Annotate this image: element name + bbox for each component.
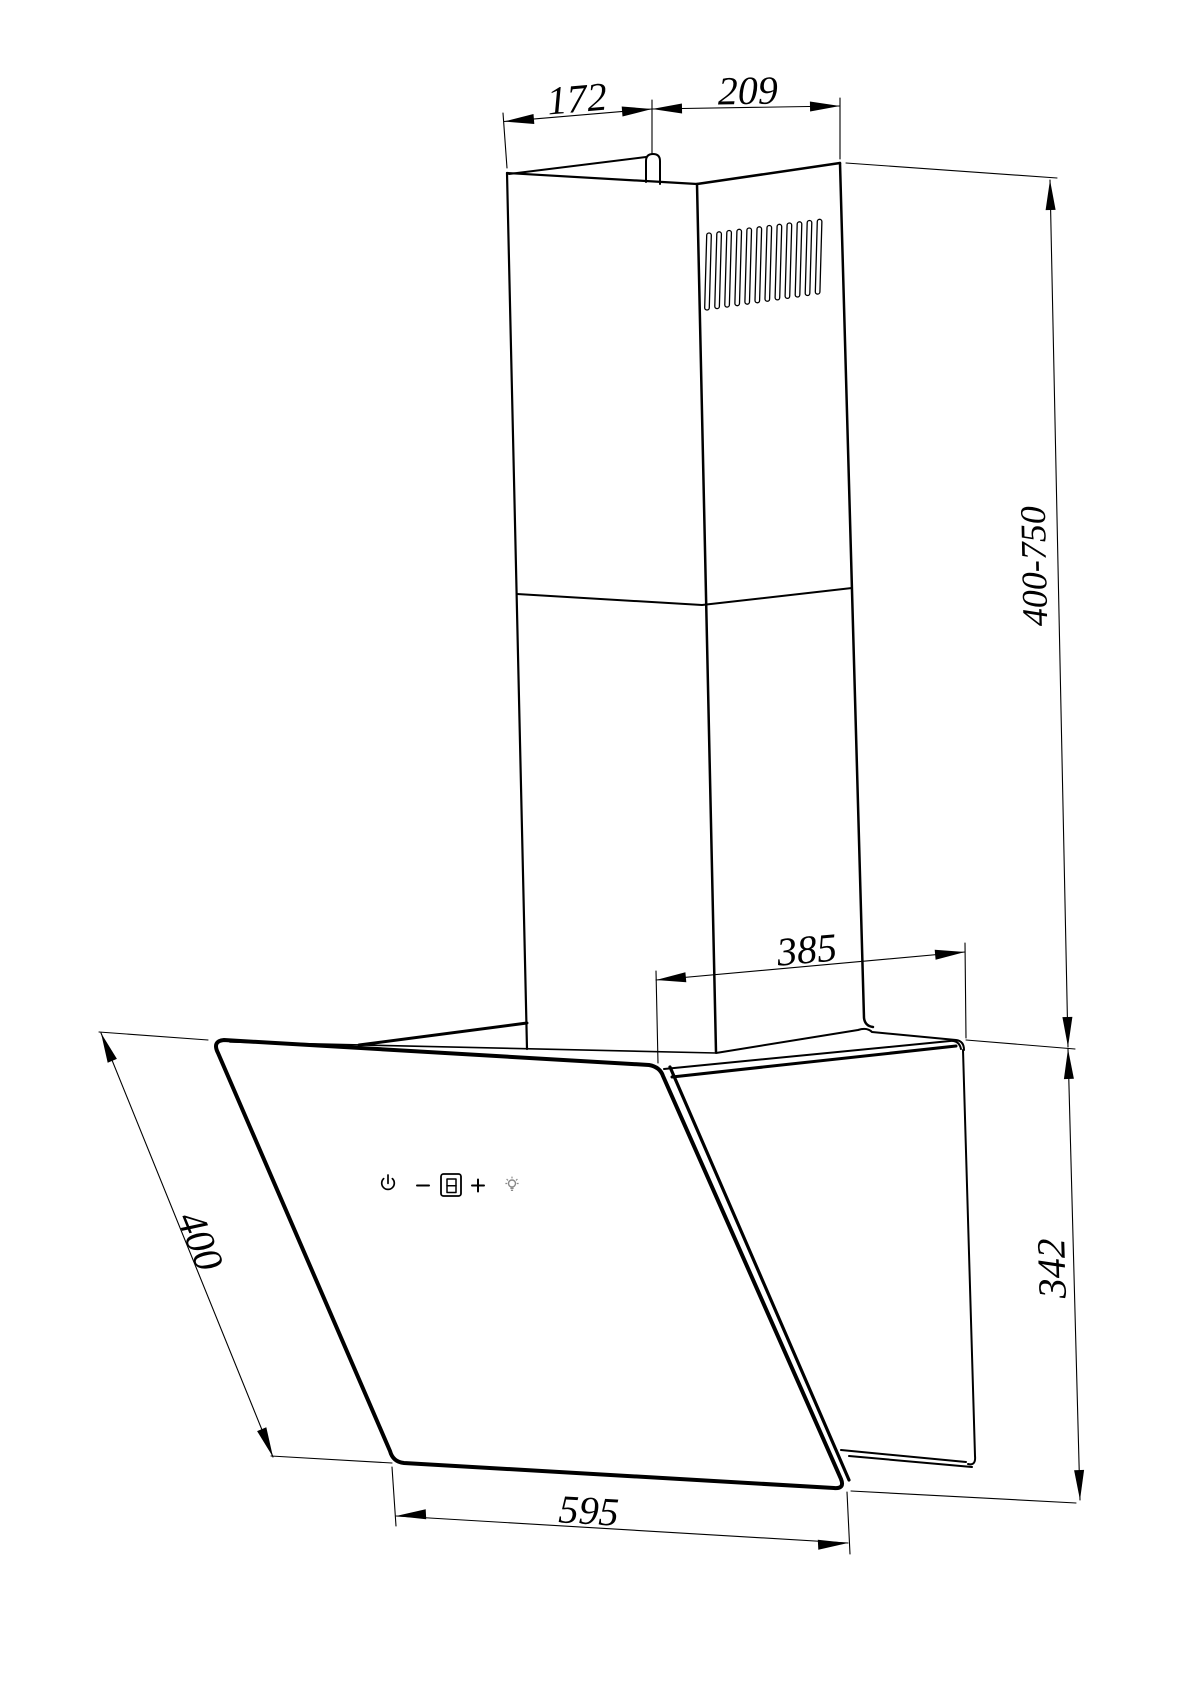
glass-panel <box>216 1040 849 1488</box>
arrowhead <box>1062 1017 1072 1047</box>
ext-line-400-top <box>99 1032 208 1040</box>
light-icon <box>505 1177 518 1191</box>
arrowhead <box>935 950 965 960</box>
dimension-label-rear-height: 342 <box>1028 1238 1075 1300</box>
chimney-side-face <box>697 163 866 1052</box>
hood-top-back-edge-left <box>359 1023 527 1045</box>
ext-line-400-bottom <box>271 1456 392 1463</box>
range-hood-dimension-drawing: 172 209 400-750 385 342 400 595 <box>0 0 1200 1697</box>
arrowhead <box>1046 180 1056 210</box>
arrowhead <box>810 102 840 112</box>
chimney-top-fold-line <box>509 157 646 174</box>
ext-line-595-right <box>847 1492 850 1554</box>
ext-line-595-left <box>392 1467 396 1526</box>
dimension-label-chimney-front-width: 172 <box>545 74 609 124</box>
arrowhead <box>504 114 534 124</box>
arrowhead <box>1074 1470 1084 1500</box>
arrowhead <box>818 1540 848 1550</box>
ext-line-height-top <box>846 163 1057 178</box>
glass-right-edge-outer <box>670 1067 849 1480</box>
ext-line-342-bottom <box>851 1491 1076 1503</box>
dimension-label-body-width: 595 <box>558 1486 621 1534</box>
ext-line-385-right <box>965 943 966 1038</box>
arrowhead <box>257 1427 273 1457</box>
dimension-label-chimney-side-width: 209 <box>717 68 778 114</box>
body-back-right-edge <box>963 1050 975 1464</box>
chimney-front-face <box>507 173 716 1052</box>
dimension-label-chimney-height-range: 400-750 <box>1013 506 1056 627</box>
chimney-duct <box>507 154 873 1052</box>
dimension-label-top-depth: 385 <box>774 924 839 974</box>
arrowhead <box>1064 1049 1074 1079</box>
ext-line-height-mid <box>966 1040 1075 1049</box>
glass-panel-outline <box>216 1040 842 1488</box>
dimension-label-panel-slant-height: 400 <box>168 1205 232 1278</box>
arrowhead <box>622 107 652 117</box>
hood-body <box>841 1050 975 1467</box>
control-panel <box>382 1174 519 1196</box>
arrowhead <box>396 1509 426 1519</box>
arrowhead <box>101 1033 117 1063</box>
dim-line-595 <box>396 1516 848 1543</box>
arrowhead <box>652 104 682 114</box>
power-icon <box>382 1175 395 1189</box>
drawing-canvas: 172 209 400-750 385 342 400 595 <box>0 0 1200 1697</box>
chimney-top-tab <box>646 154 660 184</box>
plus-icon <box>472 1180 484 1192</box>
segment-display <box>441 1174 461 1196</box>
